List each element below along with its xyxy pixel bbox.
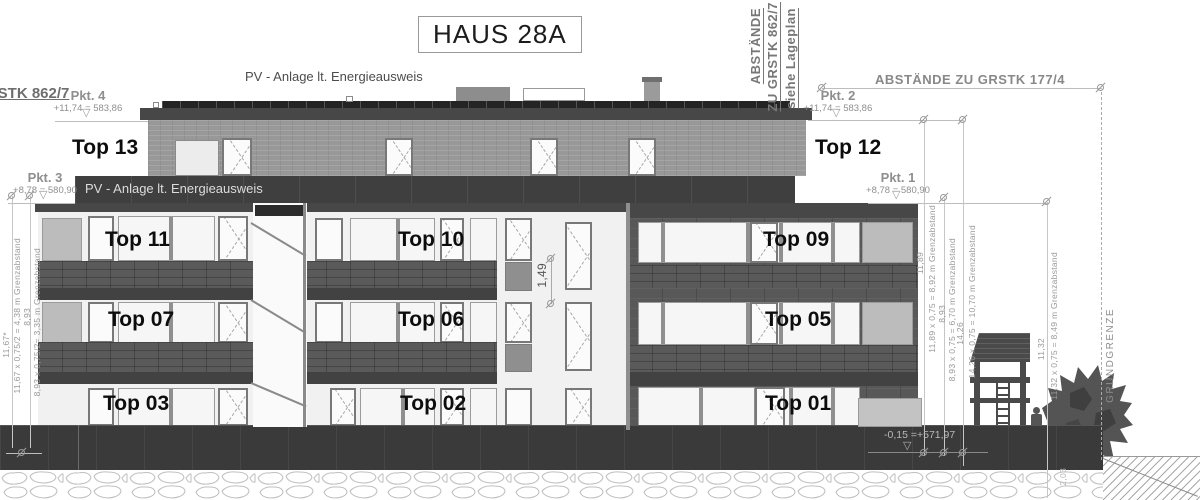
level-line <box>868 452 988 453</box>
dim-height-right: 14,26 <box>955 322 965 345</box>
setback-note-line2: ZU GRSTK 862/7 <box>765 2 780 112</box>
dimension-line <box>1047 202 1048 498</box>
level-marker-icon: ▽ <box>39 190 47 201</box>
level-line <box>868 203 1047 204</box>
dimension-marker-icon <box>920 116 927 123</box>
dim-height-right: 8,93 <box>937 305 947 323</box>
window <box>505 302 532 343</box>
dimension-line <box>551 258 552 304</box>
person-figure <box>1033 407 1040 414</box>
boundary-label: GRUNDGRENZE <box>1105 308 1116 403</box>
level-line <box>55 121 148 122</box>
downpipe <box>626 203 630 430</box>
glass-panel <box>470 388 497 426</box>
dim-height-right: 11,32 <box>1036 338 1046 360</box>
dim-calc-left: 11,67 x 0,75/2 = 4,38 m Grenzabstand <box>12 238 22 393</box>
dim-mid-label: 1,49 <box>535 263 549 288</box>
unit-label-top02: Top 02 <box>400 392 466 416</box>
dim-small: 2,03 <box>1058 468 1068 486</box>
base-level-label: -0,15 =+571,97 <box>884 429 955 441</box>
dimension-marker-icon <box>18 449 25 456</box>
play-tower-post <box>1020 362 1026 426</box>
boundary-dashed-line <box>1101 92 1102 460</box>
window <box>315 302 343 343</box>
unit-label-top11: Top 11 <box>105 228 170 252</box>
unit-label-top13: Top 13 <box>72 136 138 160</box>
casement-window <box>628 138 656 176</box>
roof-vent <box>346 96 353 102</box>
dim-height-right: 11,89 <box>915 252 925 274</box>
play-tower-ladder <box>996 380 1010 426</box>
balcony-door <box>565 302 592 371</box>
setback-note-line3: siehe Lageplan <box>783 8 798 109</box>
balcony-band <box>628 345 918 372</box>
facade-panel <box>862 302 913 345</box>
unit-label-top10: Top 10 <box>398 228 464 252</box>
dimension-marker-icon <box>26 192 33 199</box>
dimension-marker-icon <box>959 449 966 456</box>
dim-calc-left: 8,93 x 0,75/2= 3,35 m Grenzabstand <box>32 248 42 396</box>
unit-label-top12: Top 12 <box>815 136 881 160</box>
unit-label-top07: Top 07 <box>108 308 174 332</box>
casement-window <box>222 138 252 176</box>
level-line <box>808 120 963 121</box>
window <box>505 218 532 261</box>
dimension-marker-icon <box>959 116 966 123</box>
attic-panel <box>175 140 219 176</box>
level-line <box>8 203 75 204</box>
unit-label-top06: Top 06 <box>398 308 464 332</box>
dimension-line <box>944 198 945 456</box>
play-tower-roof <box>970 333 1030 362</box>
accent-panel <box>505 262 532 291</box>
parapet-band: PV - Anlage lt. Energieausweis <box>75 176 795 203</box>
window <box>315 218 343 261</box>
unit-label-top03: Top 03 <box>103 392 169 416</box>
dim-calc-right: 11,32 x 0,75 = 8,49 m Grenzabstand <box>1049 252 1059 400</box>
level-marker-icon: ▽ <box>82 108 90 119</box>
setback-note-line1: ABSTÄNDE <box>748 8 763 84</box>
drawing-title: HAUS 28A <box>418 16 582 53</box>
roof-vent <box>153 102 159 108</box>
pv-band-label: PV - Anlage lt. Energieausweis <box>85 181 263 196</box>
dim-calc-right: 8,93 x 0,75 = 6,70 m Grenzabstand <box>947 238 957 381</box>
unit-label-top01: Top 01 <box>765 392 831 416</box>
balcony-band <box>628 265 918 288</box>
casement-window <box>218 302 248 343</box>
setback-label-177: ABSTÄNDE ZU GRSTK 177/4 <box>875 72 1065 87</box>
dimension-line <box>963 120 964 466</box>
dimension-marker-icon <box>940 449 947 456</box>
dim-height-left: 11,67* <box>1 332 11 358</box>
dimension-marker-icon <box>920 449 927 456</box>
balcony-slab <box>628 372 918 386</box>
skylight-box <box>523 88 585 101</box>
casement-window <box>218 388 248 426</box>
window <box>505 388 532 426</box>
facade-panel <box>862 222 913 263</box>
casement-window <box>385 138 413 176</box>
facade-panel <box>42 302 82 343</box>
extension-line <box>78 425 79 497</box>
dimension-marker-icon <box>1097 84 1104 91</box>
unit-label-top05: Top 05 <box>765 308 831 332</box>
point-name: Pkt. 2 <box>804 88 873 103</box>
casement-window <box>530 138 558 176</box>
dimension-marker-icon <box>940 194 947 201</box>
level-marker-icon: ▽ <box>832 108 840 119</box>
dimension-marker-icon <box>1043 198 1050 205</box>
glass-panel <box>470 218 497 261</box>
glass-panel <box>470 302 497 343</box>
dimension-marker-icon <box>547 300 554 307</box>
roof-equipment-block <box>456 87 510 101</box>
pv-panel-strip <box>162 101 790 108</box>
casement-window <box>330 388 356 426</box>
window <box>565 388 592 426</box>
point-name: Pkt. 3 <box>13 170 77 185</box>
facade-panel <box>42 218 82 261</box>
dimension-marker-icon <box>8 192 15 199</box>
stone-foundation-hatch <box>0 470 1103 500</box>
dimension-marker-icon <box>547 255 554 262</box>
dim-height-left: 8,93 <box>22 308 32 326</box>
stairwell-header <box>255 205 305 216</box>
casement-window <box>218 216 248 261</box>
right-wing-roof-slab <box>628 203 918 218</box>
chimney <box>644 82 660 101</box>
point-name: Pkt. 1 <box>866 170 930 185</box>
dim-calc-right: 11,89 x 0,75 = 8,92 m Grenzabstand <box>927 205 937 353</box>
dim-calc-right: 14,26 x 0,75 = 10,70 m Grenzabstand <box>967 225 977 378</box>
stairwell-post <box>303 203 306 427</box>
unit-label-top09: Top 09 <box>763 228 829 252</box>
terrace-wall <box>858 398 922 427</box>
pv-roof-label: PV - Anlage lt. Energieausweis <box>245 69 423 84</box>
level-marker-icon: ▽ <box>903 441 911 452</box>
level-marker-icon: ▽ <box>892 190 900 201</box>
attic-roof-slab <box>140 108 812 120</box>
balcony-door <box>565 222 592 290</box>
point-name: Pkt. 4 <box>54 88 123 103</box>
elevation-drawing: PV - Anlage lt. Energieausweis <box>0 0 1200 500</box>
accent-panel <box>505 344 532 372</box>
